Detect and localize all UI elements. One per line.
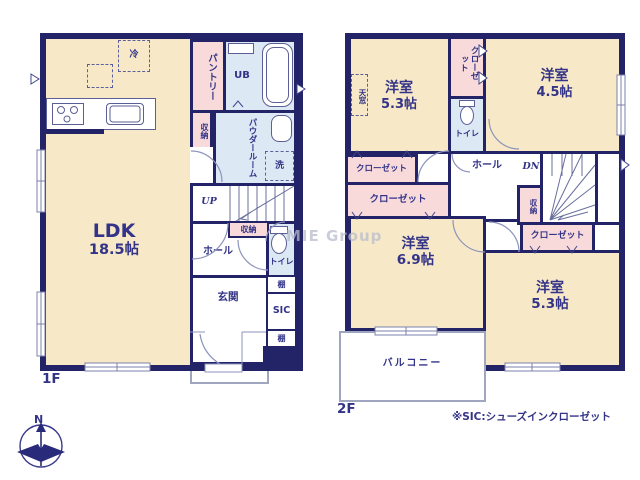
bedroom-ne-label: 洋室 4.5帖 bbox=[512, 68, 597, 100]
ldk-size: 18.5帖 bbox=[58, 242, 170, 259]
ldk-label: LDK 18.5帖 bbox=[58, 220, 170, 260]
bedroom-sw-size: 6.9帖 bbox=[368, 253, 463, 269]
ldk-name: LDK bbox=[58, 220, 170, 242]
balcony-label: バルコニー bbox=[339, 358, 486, 370]
closet-b-label: クローゼット bbox=[345, 194, 451, 205]
bedroom-se-label: 洋室 5.3帖 bbox=[500, 280, 600, 312]
powder-basin bbox=[271, 115, 292, 142]
compass-wings bbox=[17, 444, 65, 462]
room-entrance bbox=[190, 275, 269, 365]
stairwell-void bbox=[595, 151, 622, 225]
hall-storage-label: 収納 bbox=[228, 225, 269, 234]
toilet-1f-label: トイレ bbox=[266, 257, 297, 266]
pantry-label: パントリー bbox=[199, 45, 217, 109]
bedroom-nw-name: 洋室 bbox=[356, 80, 442, 97]
closet-top-label: クローゼット bbox=[455, 46, 479, 80]
bath-counter bbox=[228, 43, 254, 54]
shelf-upper-label: 棚 bbox=[266, 280, 297, 289]
stairs-2f bbox=[540, 151, 598, 225]
floorplan-canvas: 冷 LDK 18.5帖 パントリー UB 収納 パウダールーム 洗 UP ホール… bbox=[0, 0, 640, 480]
unit-bath-label: UB bbox=[227, 70, 257, 82]
bedroom-se-size: 5.3帖 bbox=[500, 297, 600, 313]
toilet-bowl-1f bbox=[271, 233, 287, 254]
bedroom-ne-size: 4.5帖 bbox=[512, 85, 597, 100]
watermark: MIE Group bbox=[286, 227, 382, 245]
closet-c-label: クローゼット bbox=[520, 231, 595, 242]
bedroom-ne-name: 洋室 bbox=[512, 68, 597, 85]
entrance-porch bbox=[190, 371, 269, 384]
powder-label: パウダールーム bbox=[239, 113, 257, 183]
stairs-up-label: UP bbox=[193, 196, 225, 207]
entrance-label: 玄関 bbox=[203, 291, 253, 303]
bedroom-se-name: 洋室 bbox=[500, 280, 600, 297]
wall-block-1f bbox=[263, 346, 303, 366]
kitchen-wall bbox=[46, 129, 104, 134]
bathtub-inner bbox=[266, 47, 289, 103]
closet-a-label: クローゼット bbox=[345, 164, 418, 174]
laundry-label: 洗 bbox=[265, 161, 294, 172]
cupboard-space bbox=[87, 64, 113, 88]
hall-2f-label: ホール bbox=[462, 160, 512, 172]
fridge-label: 冷 bbox=[118, 50, 150, 61]
compass-circle bbox=[20, 425, 62, 467]
footnote: ※SIC:シューズインクローゼット bbox=[452, 411, 611, 423]
floor2-label: 2F bbox=[337, 402, 356, 418]
bedroom-nw-label: 洋室 5.3帖 bbox=[356, 80, 442, 112]
kitchen-sink bbox=[106, 103, 144, 125]
sic-label: SIC bbox=[266, 305, 297, 316]
floor1-label: 1F bbox=[42, 372, 61, 388]
kitchen-storage-label: 収納 bbox=[195, 117, 209, 145]
toilet-2f-label: トイレ bbox=[448, 129, 486, 138]
room-ldk bbox=[46, 39, 193, 365]
toilet-bowl-2f bbox=[460, 106, 474, 125]
storage-2f-label: 収納 bbox=[523, 193, 537, 219]
hall-1f-label: ホール bbox=[194, 246, 242, 258]
compass-north-label: N bbox=[34, 414, 43, 427]
stairs-dn-label: DN bbox=[518, 161, 544, 172]
bedroom-nw-size: 5.3帖 bbox=[356, 97, 442, 112]
shelf-lower-label: 棚 bbox=[266, 334, 297, 343]
stove bbox=[52, 103, 84, 125]
